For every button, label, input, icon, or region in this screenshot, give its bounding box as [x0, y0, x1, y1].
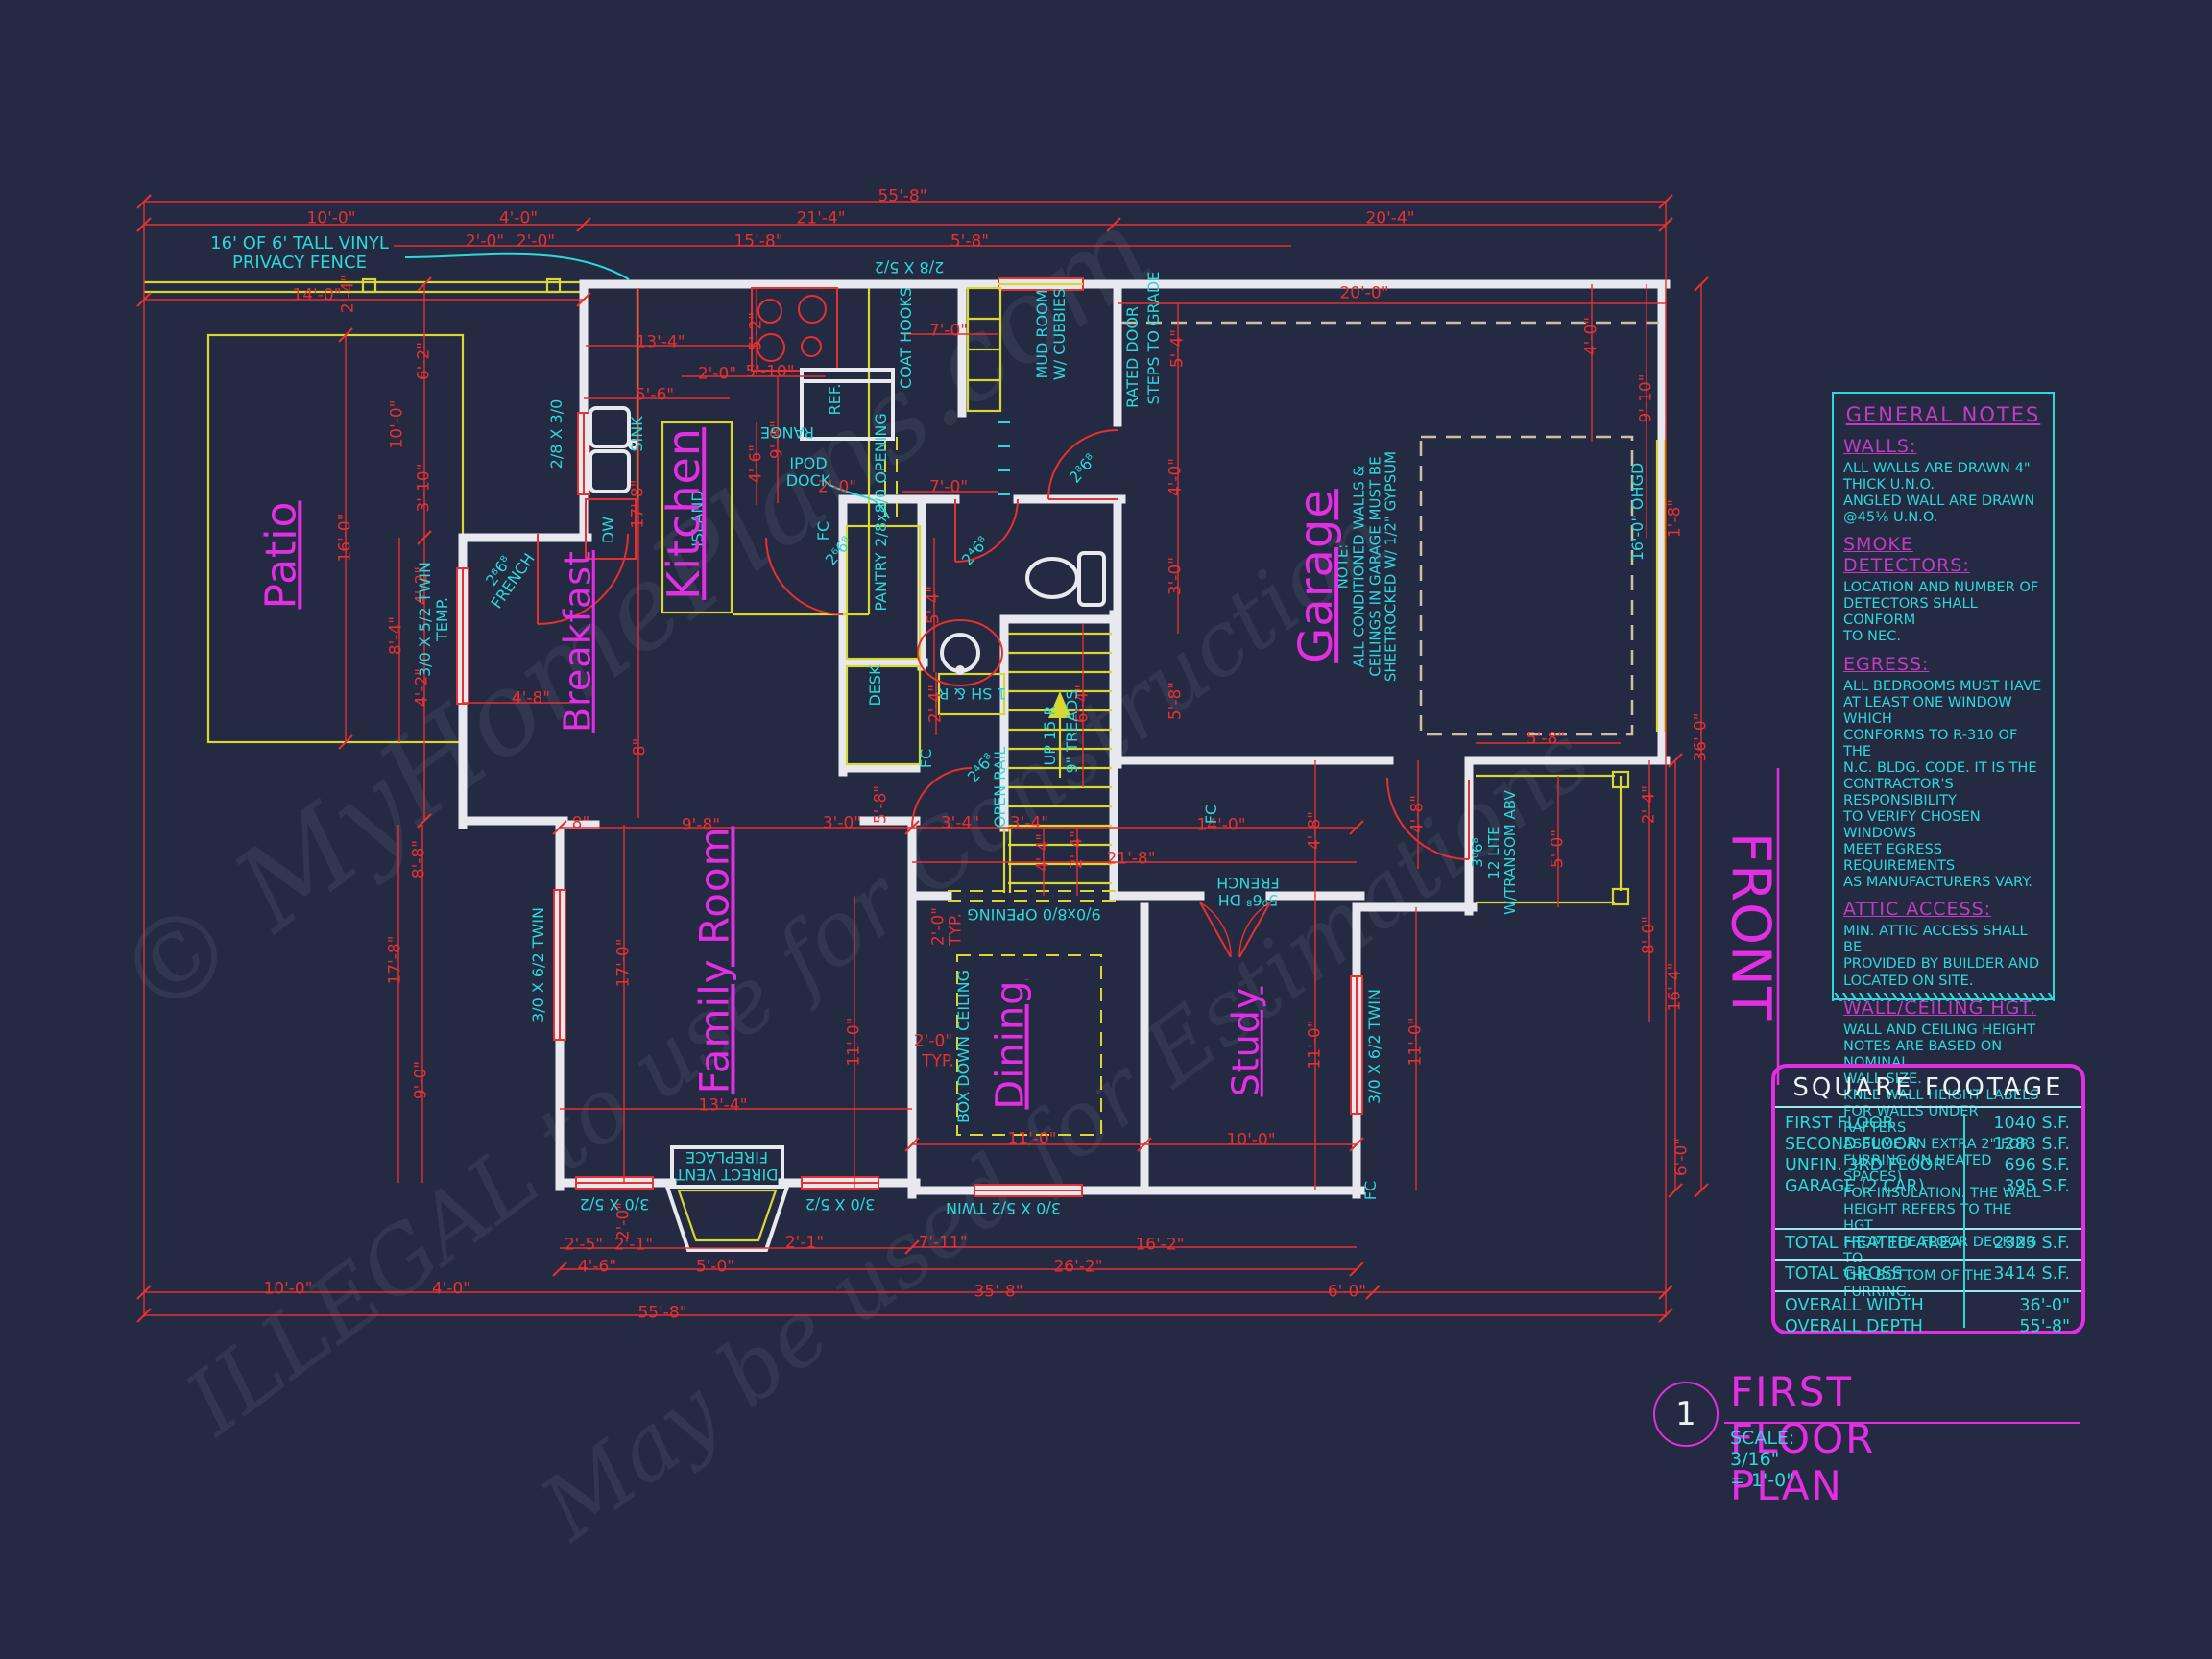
general-notes-panel: GENERAL NOTES WALLS:ALL WALLS ARE DRAWN …	[1832, 392, 2055, 1000]
room-label: Family Room	[691, 826, 736, 1094]
sqft-row-value: 55'-8"	[1963, 1317, 2081, 1338]
sqft-row-label: FIRST FLOOR	[1775, 1114, 1963, 1135]
sqft-row-label: TOTAL HEATED AREA	[1775, 1234, 1963, 1255]
room-label: Garage	[1291, 489, 1343, 663]
sqft-row-value: 36'-0"	[1963, 1296, 2081, 1317]
sqft-row-label: SECOND FLOOR	[1775, 1135, 1963, 1156]
sqft-body: FIRST FLOOR1040 S.F.SECOND FLOOR1283 S.F…	[1775, 1114, 2081, 1334]
sqft-row: UNFIN. 3RD FLOOR696 S.F.	[1775, 1156, 2081, 1177]
sqft-separator	[1775, 1290, 2081, 1292]
notes-section-body: ALL WALLS ARE DRAWN 4" THICK U.N.O. ANGL…	[1843, 460, 2043, 525]
sqft-row-label: UNFIN. 3RD FLOOR	[1775, 1156, 1963, 1177]
room-label: Patio	[257, 501, 304, 610]
room-label: Breakfast	[558, 550, 599, 733]
sqft-row-value: 1283 S.F.	[1963, 1135, 2081, 1156]
sqft-row: FIRST FLOOR1040 S.F.	[1775, 1114, 2081, 1135]
drawing-scale: SCALE: 3/16" = 1'-0"	[1730, 1428, 1794, 1491]
notes-section-heading: SMOKE DETECTORS:	[1843, 534, 2043, 576]
notes-hatch	[1832, 993, 2055, 1001]
sqft-row-label: OVERALL DEPTH	[1775, 1317, 1963, 1338]
sqft-separator	[1775, 1228, 2081, 1230]
sqft-row-value: 2323 S.F.	[1963, 1234, 2081, 1255]
room-label: FRONT	[1719, 832, 1780, 1021]
room-label: Dining	[990, 979, 1033, 1109]
sqft-row-value: 3414 S.F.	[1963, 1264, 2081, 1286]
sqft-separator	[1775, 1259, 2081, 1261]
sheet-number-bubble: 1	[1653, 1382, 1719, 1447]
notes-section-body: ALL BEDROOMS MUST HAVE AT LEAST ONE WIND…	[1843, 678, 2043, 891]
sqft-row: TOTAL GROSS .3414 S.F.	[1775, 1264, 2081, 1286]
sqft-row: TOTAL HEATED AREA2323 S.F.	[1775, 1234, 2081, 1255]
sqft-row-label: GARAGE (2 CAR)	[1775, 1177, 1963, 1198]
sqft-row-value: 1040 S.F.	[1963, 1114, 2081, 1135]
notes-section-body: MIN. ATTIC ACCESS SHALL BE PROVIDED BY B…	[1843, 923, 2043, 988]
sqft-row-label: TOTAL GROSS .	[1775, 1264, 1963, 1286]
sqft-row: SECOND FLOOR1283 S.F.	[1775, 1135, 2081, 1156]
sqft-row: OVERALL DEPTH55'-8"	[1775, 1317, 2081, 1338]
sqft-row-value: 696 S.F.	[1963, 1156, 2081, 1177]
notes-section-heading: EGRESS:	[1843, 654, 2043, 675]
notes-section-heading: ATTIC ACCESS:	[1843, 899, 2043, 920]
notes-title: GENERAL NOTES	[1843, 403, 2043, 426]
sqft-row: GARAGE (2 CAR)395 S.F.	[1775, 1177, 2081, 1198]
sqft-row-value: 395 S.F.	[1963, 1177, 2081, 1198]
notes-section-heading: WALLS:	[1843, 436, 2043, 457]
title-underline	[1724, 1422, 2080, 1424]
square-footage-table: SQUARE FOOTAGE FIRST FLOOR1040 S.F.SECON…	[1771, 1064, 2085, 1334]
sqft-column-divider	[1963, 1114, 1965, 1328]
sqft-row: OVERALL WIDTH36'-0"	[1775, 1296, 2081, 1317]
notes-section-body: LOCATION AND NUMBER OF DETECTORS SHALL C…	[1843, 579, 2043, 644]
room-label: Study	[1226, 987, 1267, 1097]
sqft-title: SQUARE FOOTAGE	[1775, 1068, 2081, 1108]
sqft-row-label: OVERALL WIDTH	[1775, 1296, 1963, 1317]
floor-plan-sheet: © MyHomePlans.comILLEGAL to use for Cons…	[0, 0, 2212, 1659]
room-label: Kitchen	[660, 427, 709, 600]
